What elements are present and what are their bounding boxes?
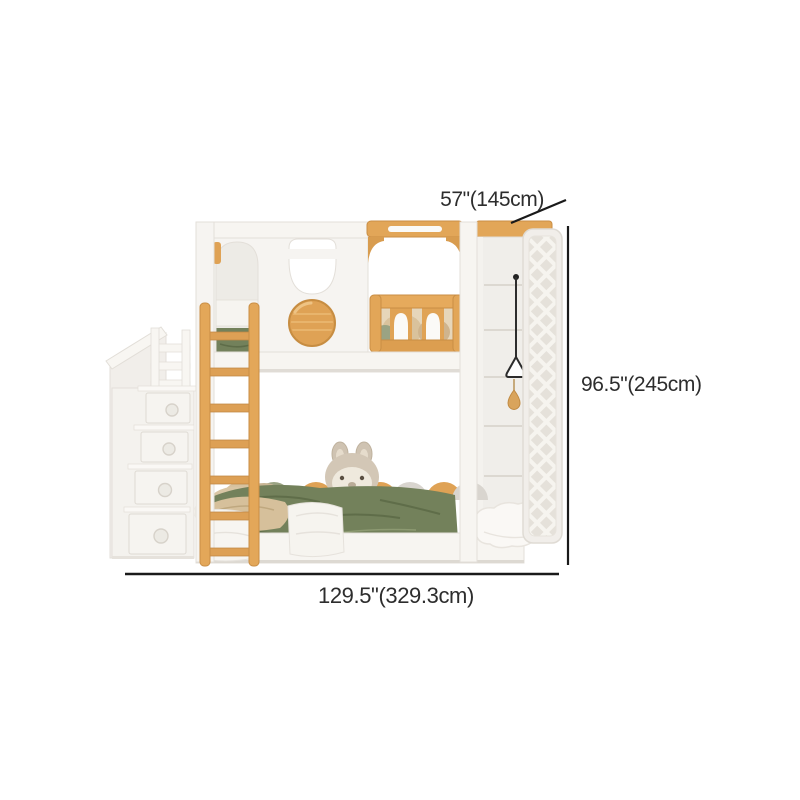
drawer-handle [163, 443, 175, 455]
wood-bracket [368, 237, 384, 263]
storage-staircase [106, 327, 196, 559]
center-post [460, 222, 477, 562]
staircase-railing [151, 328, 190, 390]
upper-guard-rail [370, 295, 464, 352]
ladder-rail [249, 303, 259, 566]
drawer-handle [166, 404, 178, 416]
white-drape-middle [288, 502, 344, 556]
top-rail-white [196, 222, 368, 238]
beam-handle-slot [388, 226, 442, 232]
height-dimension-label: 96.5"(245cm) [581, 373, 702, 397]
drawer-handle [154, 529, 168, 543]
ladder-rail [200, 303, 210, 566]
depth-dimension-label: 57"(145cm) [440, 188, 544, 212]
drawer-handle [159, 484, 172, 497]
climbing-net [523, 229, 562, 543]
width-dimension-label: 129.5"(329.3cm) [318, 583, 458, 609]
bunk-bed-illustration [0, 0, 800, 800]
window-crossbar [286, 249, 339, 259]
porthole-window [289, 300, 335, 346]
wood-top-beam-left [367, 221, 463, 263]
product-dimension-image: 57"(145cm) 96.5"(245cm) 129.5"(329.3cm) [0, 0, 800, 800]
